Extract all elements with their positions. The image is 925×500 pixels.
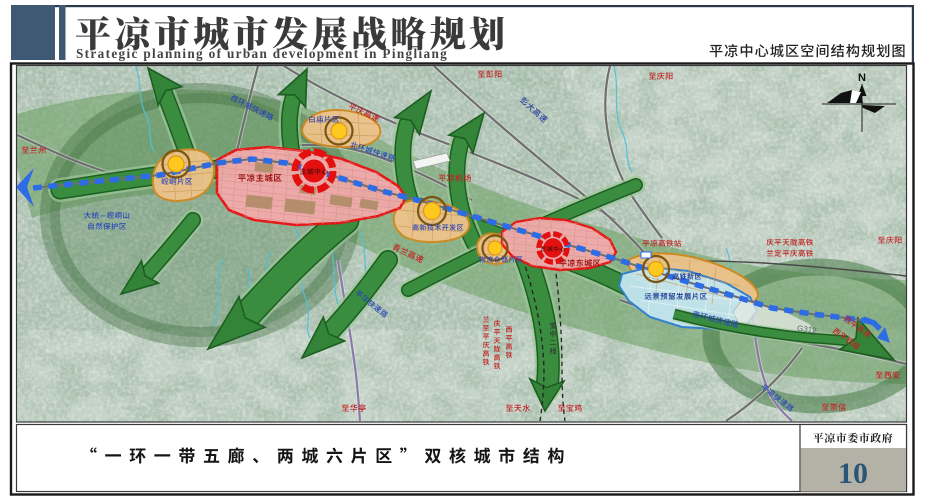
svg-text:Strategic planning of urban de: Strategic planning of urban development … [76,46,448,61]
svg-text:10: 10 [838,457,868,490]
svg-text:N: N [858,72,866,84]
